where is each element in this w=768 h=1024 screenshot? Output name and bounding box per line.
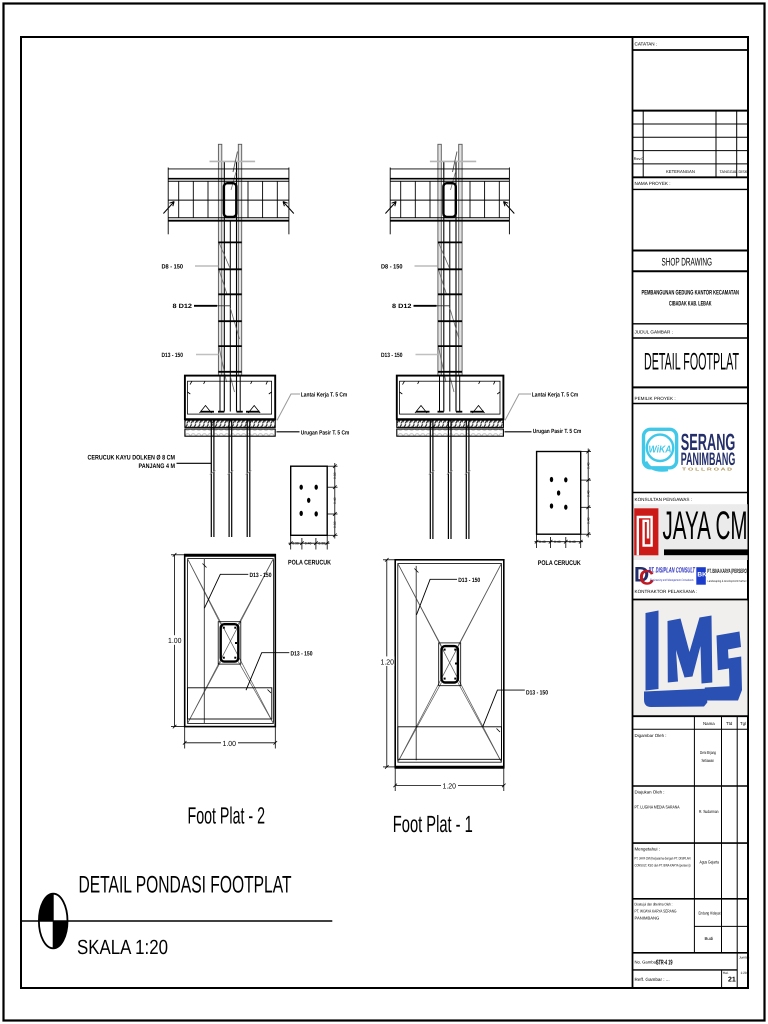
- svg-text:Diajukan Oleh :: Diajukan Oleh :: [635, 790, 665, 795]
- svg-text:8 D12: 8 D12: [392, 303, 412, 310]
- svg-text:Urugan Pasir T. 5 Cm: Urugan Pasir T. 5 Cm: [301, 429, 350, 436]
- svg-text:PT. LUGINA MEDIA SARANA: PT. LUGINA MEDIA SARANA: [635, 805, 680, 810]
- svg-text:POLA CERUCUK: POLA CERUCUK: [538, 560, 581, 567]
- svg-text:PT. DISIPLAN CONSULT: PT. DISIPLAN CONSULT: [649, 566, 696, 575]
- svg-text:Reff. Gambar : ...: Reff. Gambar : ...: [635, 977, 670, 982]
- svg-text:T O L L R O A D: T O L L R O A D: [682, 467, 732, 472]
- svg-text:PANIMBANG: PANIMBANG: [635, 916, 660, 921]
- svg-text:D13 - 150: D13 - 150: [162, 352, 184, 359]
- svg-text:PT. WIJAYA KARYA SERANG: PT. WIJAYA KARYA SERANG: [635, 909, 677, 914]
- svg-text:0.40: 0.40: [333, 497, 337, 504]
- svg-text:POLA CERUCUK: POLA CERUCUK: [288, 560, 331, 567]
- svg-text:Budi: Budi: [705, 936, 714, 941]
- svg-text:Ttd: Ttd: [726, 721, 733, 726]
- svg-text:CIBADAK KAB. LEBAK: CIBADAK KAB. LEBAK: [669, 300, 712, 307]
- svg-text:CERUCUK KAYU DOLKEN Ø 8 CM: CERUCUK KAYU DOLKEN Ø 8 CM: [88, 454, 176, 461]
- svg-text:Tgl: Tgl: [740, 721, 746, 726]
- svg-text:KONSULTAN PENGAWAS :: KONSULTAN PENGAWAS :: [635, 497, 692, 502]
- svg-text:1.00: 1.00: [223, 739, 237, 748]
- svg-text:21: 21: [728, 977, 736, 984]
- svg-text:D8 - 150: D8 - 150: [162, 263, 184, 270]
- svg-text:Engineering and Management Con: Engineering and Management Consultants: [650, 578, 694, 582]
- svg-text:DETAIL FOOTPLAT: DETAIL FOOTPLAT: [644, 348, 739, 375]
- svg-text:D8 - 150: D8 - 150: [381, 263, 403, 270]
- svg-text:PT. BINA KARYA (PERSERO): PT. BINA KARYA (PERSERO): [707, 568, 748, 575]
- svg-text:PT. JAYA CM (Kerjasama dengan: PT. JAYA CM (Kerjasama dengan PT. DISIPL…: [635, 857, 691, 861]
- svg-text:Digambar Oleh :: Digambar Oleh :: [635, 733, 667, 738]
- svg-text:JAYA CM: JAYA CM: [663, 504, 748, 548]
- svg-text:KETERANGAN: KETERANGAN: [666, 169, 695, 174]
- svg-text:1:20: 1:20: [741, 971, 747, 975]
- svg-text:Disetujui dan diterima Oleh :: Disetujui dan diterima Oleh :: [635, 903, 673, 907]
- svg-text:BK: BK: [697, 572, 707, 579]
- svg-text:Agus Gejarta: Agus Gejarta: [700, 860, 720, 865]
- svg-text:CONSULT, KSO dan PT. BINA KARY: CONSULT, KSO dan PT. BINA KARYA (persero…: [635, 864, 691, 868]
- svg-text:8 D12: 8 D12: [173, 303, 193, 310]
- svg-text:0.30: 0.30: [333, 472, 337, 479]
- svg-text:D13 - 150: D13 - 150: [250, 572, 272, 579]
- svg-text:D13 - 150: D13 - 150: [381, 352, 403, 359]
- svg-text:0.30: 0.30: [333, 521, 337, 528]
- svg-text:SHOP DRAWING: SHOP DRAWING: [662, 256, 713, 268]
- svg-text:CATATAN :: CATATAN :: [635, 42, 658, 47]
- svg-text:1.20: 1.20: [443, 782, 457, 791]
- svg-text:D13 - 150: D13 - 150: [291, 650, 313, 657]
- svg-text:0.40: 0.40: [569, 540, 576, 544]
- svg-text:KONTRAKTOR PELAKSANA :: KONTRAKTOR PELAKSANA :: [635, 589, 698, 594]
- svg-text:PANJANG 4 M: PANJANG 4 M: [139, 463, 176, 470]
- svg-text:Nama: Nama: [703, 721, 715, 726]
- svg-text:DISK: DISK: [739, 170, 748, 174]
- svg-text:PEMILIK PROYEK :: PEMILIK PROYEK :: [635, 396, 676, 401]
- svg-text:JUDUL GAMBAR :: JUDUL GAMBAR :: [635, 330, 673, 335]
- svg-text:PEMBANGUNAN GEDUNG KANTOR KECA: PEMBANGUNAN GEDUNG KANTOR KECAMATAN: [642, 289, 740, 296]
- svg-text:Foot Plat - 1: Foot Plat - 1: [393, 811, 473, 837]
- svg-text:0.40: 0.40: [539, 540, 546, 544]
- svg-text:SKALA 1:20: SKALA 1:20: [77, 936, 168, 959]
- svg-text:1.20: 1.20: [381, 657, 395, 666]
- svg-text:Jumlah: Jumlah: [739, 956, 750, 960]
- svg-text:D13 - 150: D13 - 150: [526, 690, 548, 697]
- svg-text:0.40: 0.40: [587, 462, 591, 469]
- svg-text:Hal.: Hal.: [723, 971, 729, 975]
- svg-text:DETAIL PONDASI FOOTPLAT: DETAIL PONDASI FOOTPLAT: [79, 872, 292, 899]
- svg-text:TANGGAL: TANGGAL: [720, 170, 738, 174]
- svg-text:Landscaping & Development Part: Landscaping & Development Partner: [708, 579, 747, 583]
- svg-text:Lantai Kerja T. 5 Cm: Lantai Kerja T. 5 Cm: [532, 391, 579, 398]
- svg-text:D13 - 150: D13 - 150: [458, 577, 480, 584]
- svg-text:R. Sudarman: R. Sudarman: [699, 809, 719, 814]
- svg-text:Rev.0: Rev.0: [634, 157, 644, 161]
- svg-text:STR-4 19: STR-4 19: [656, 960, 673, 967]
- svg-text:NAMA PROYEK :: NAMA PROYEK :: [635, 181, 671, 186]
- svg-text:Foot Plat - 2: Foot Plat - 2: [188, 802, 266, 828]
- svg-text:0.40: 0.40: [587, 490, 591, 497]
- svg-text:Setiawan: Setiawan: [702, 758, 715, 763]
- svg-text:WiKA: WiKA: [649, 445, 672, 456]
- svg-text:Lantai Kerja T. 5 Cm: Lantai Kerja T. 5 Cm: [301, 391, 348, 398]
- svg-text:0.40: 0.40: [587, 517, 591, 524]
- svg-text:1.00: 1.00: [168, 636, 182, 645]
- svg-text:0.30: 0.30: [292, 542, 299, 546]
- svg-text:0.30: 0.30: [318, 542, 325, 546]
- svg-text:0.40: 0.40: [305, 542, 312, 546]
- svg-text:0.40: 0.40: [554, 540, 561, 544]
- svg-text:Deni Erjang: Deni Erjang: [700, 750, 716, 755]
- svg-text:Endang Hidayat: Endang Hidayat: [699, 911, 722, 916]
- svg-text:Mengetahui :: Mengetahui :: [635, 847, 660, 852]
- svg-text:Urugan Pasir T. 5 Cm: Urugan Pasir T. 5 Cm: [533, 428, 582, 435]
